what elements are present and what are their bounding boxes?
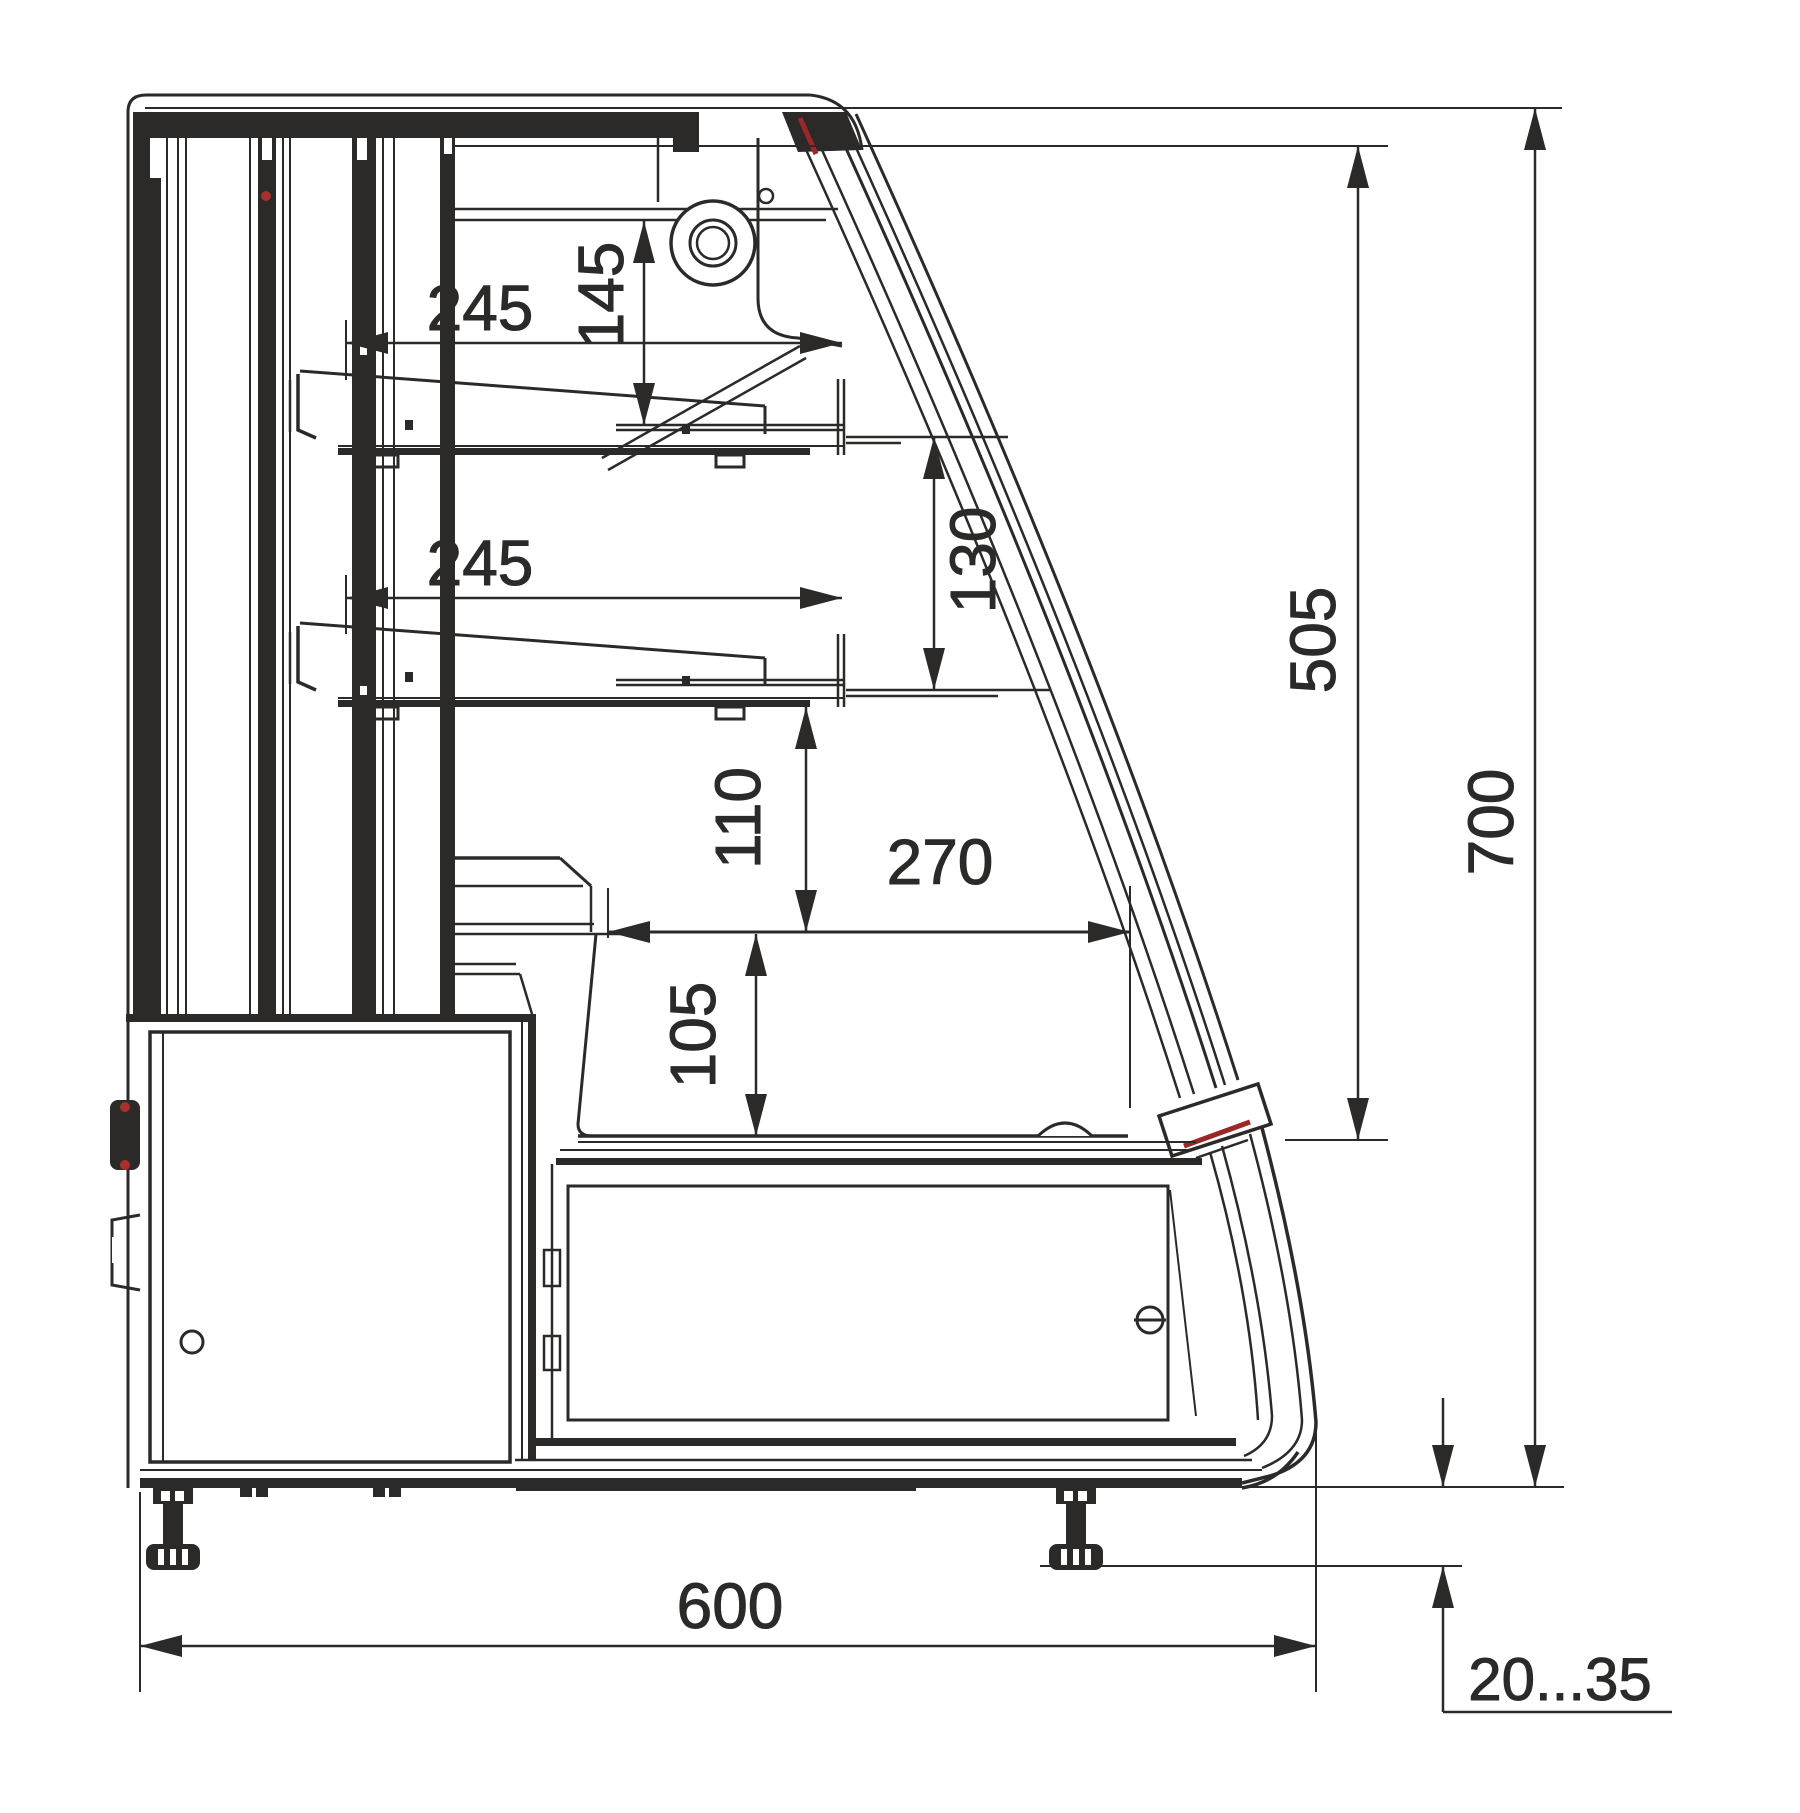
red-marker-dot [261,191,271,201]
dim-label-shelf2-to-well: 110 [702,767,774,869]
canopy [145,95,862,220]
under-well-compartment [544,1164,1168,1438]
red-indicator-bottom [120,1160,130,1170]
dim-shelf2-to-well: 110 [702,707,817,932]
well-deck [448,858,1248,1165]
technical-drawing: 245 145 245 130 110 [0,0,1800,1813]
right-foot [1049,1488,1103,1570]
left-foot [146,1488,200,1570]
floor-bump [1038,1123,1092,1136]
shelf-wall-hook [298,626,316,690]
dim-label-overall-height: 700 [1455,769,1527,876]
dim-label-canopy-to-shelf1: 145 [565,242,637,349]
dim-label-shelf1-to-shelf2: 130 [937,507,1009,614]
dim-label-shelf1-width: 245 [427,272,534,344]
dim-well-depth: 105 [657,934,767,1136]
light-fixture [602,138,842,470]
front-bumper [1170,1128,1316,1483]
glass-front [798,114,1271,1156]
dim-label-foot-adjustment: 20...35 [1468,1646,1652,1713]
dim-label-overall-depth: 600 [677,1570,784,1642]
screw-icon [759,189,773,203]
dim-label-well-width: 270 [887,826,994,898]
base-and-feet [140,1438,1298,1570]
inner-door [568,1186,1168,1420]
dim-label-glass-height: 505 [1277,587,1349,694]
lamp-outer-circle [671,201,755,285]
machine-compartment [110,1014,536,1462]
dim-shelf1-to-shelf2: 130 [923,437,1009,690]
dim-label-well-depth: 105 [657,982,729,1089]
red-indicator-top [120,1102,130,1112]
dim-label-shelf2-width: 245 [427,527,534,599]
drawing-canvas: 245 145 245 130 110 [0,0,1800,1813]
vent-hole [181,1331,203,1353]
shelf-wall-hook [298,374,316,438]
machine-door [150,1032,510,1462]
well-back-wall [578,934,596,1136]
dim-shelf2-width: 245 [346,527,842,634]
